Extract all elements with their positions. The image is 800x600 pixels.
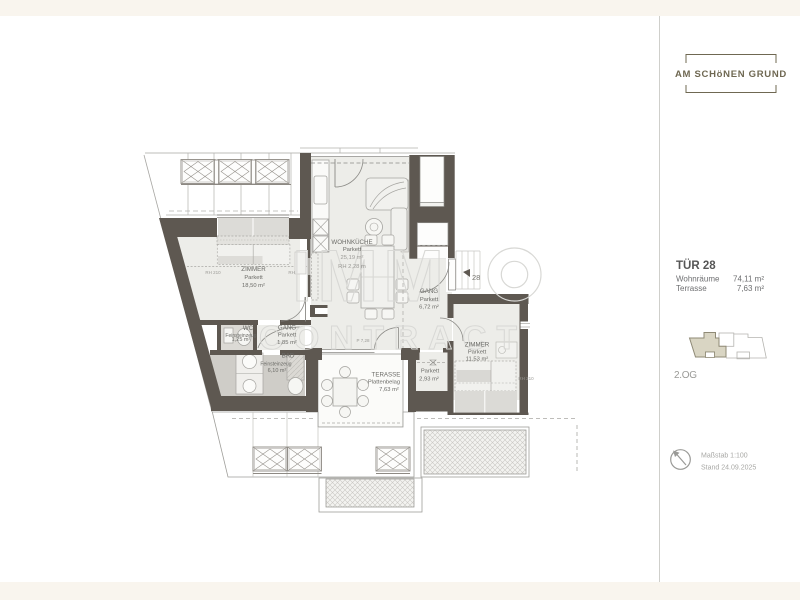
svg-text:Maßstab 1:100: Maßstab 1:100 bbox=[701, 453, 748, 460]
svg-text:ZIMMER: ZIMMER bbox=[465, 342, 490, 349]
svg-text:Feinsteinzeug: Feinsteinzeug bbox=[260, 362, 291, 368]
svg-text:Parkett: Parkett bbox=[421, 369, 440, 375]
svg-text:Parkett: Parkett bbox=[278, 333, 297, 339]
svg-text:11,53 m²: 11,53 m² bbox=[466, 357, 489, 363]
svg-text:ZIMMER: ZIMMER bbox=[241, 266, 266, 273]
svg-text:CONTRACT: CONTRACT bbox=[259, 320, 527, 357]
svg-text:7,63 m²: 7,63 m² bbox=[379, 387, 399, 393]
svg-text:TERASSE: TERASSE bbox=[372, 372, 401, 379]
svg-text:GANG: GANG bbox=[278, 325, 296, 332]
svg-text:Parkett: Parkett bbox=[420, 297, 439, 303]
svg-text:GANG: GANG bbox=[420, 288, 438, 295]
svg-text:Parkett: Parkett bbox=[468, 350, 487, 356]
svg-text:RH 210: RH 210 bbox=[205, 270, 221, 275]
svg-text:28: 28 bbox=[472, 273, 480, 282]
svg-text:WC: WC bbox=[243, 325, 254, 332]
svg-text:WOHNKÜCHE: WOHNKÜCHE bbox=[331, 239, 372, 246]
svg-text:25,19 m²: 25,19 m² bbox=[341, 255, 364, 261]
svg-text:P 7,28: P 7,28 bbox=[357, 338, 370, 343]
svg-text:BAD: BAD bbox=[282, 353, 295, 360]
svg-text:Stand 24.09.2025: Stand 24.09.2025 bbox=[701, 465, 756, 472]
svg-text:RH 210: RH 210 bbox=[518, 376, 534, 381]
svg-text:7,63 m²: 7,63 m² bbox=[737, 284, 764, 293]
svg-text:74,11 m²: 74,11 m² bbox=[733, 275, 764, 284]
svg-text:Parkett: Parkett bbox=[244, 275, 263, 281]
svg-text:AM SCHöNEN GRUND: AM SCHöNEN GRUND bbox=[675, 69, 787, 80]
svg-text:1,85 m²: 1,85 m² bbox=[277, 340, 297, 346]
svg-text:2.OG: 2.OG bbox=[674, 370, 697, 381]
svg-text:2,93 m²: 2,93 m² bbox=[419, 377, 439, 383]
svg-text:6,10 m²: 6,10 m² bbox=[268, 368, 287, 374]
svg-text:Wohnräume: Wohnräume bbox=[676, 275, 720, 284]
svg-text:18,50 m²: 18,50 m² bbox=[242, 283, 265, 289]
svg-text:Terrasse: Terrasse bbox=[676, 284, 707, 293]
svg-text:1,25 m²: 1,25 m² bbox=[232, 337, 251, 343]
svg-text:Parkett: Parkett bbox=[343, 247, 362, 253]
svg-text:6,72 m²: 6,72 m² bbox=[419, 305, 439, 311]
svg-text:Plattenbelag: Plattenbelag bbox=[368, 380, 400, 386]
svg-text:RH 2,28 m: RH 2,28 m bbox=[338, 264, 366, 270]
svg-text:TÜR 28: TÜR 28 bbox=[676, 259, 716, 272]
